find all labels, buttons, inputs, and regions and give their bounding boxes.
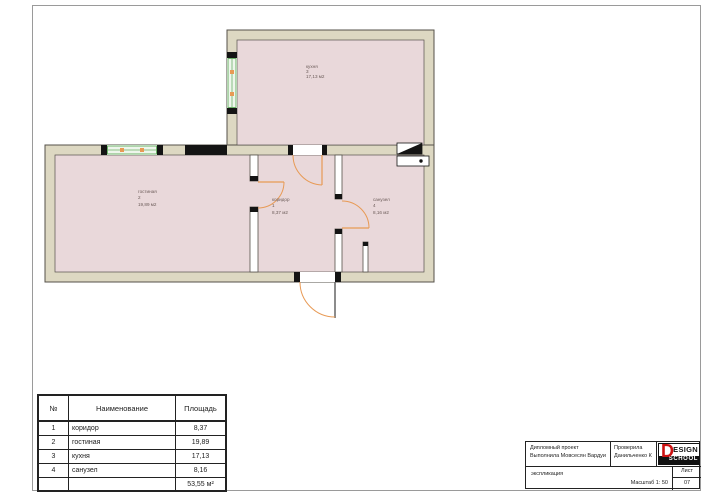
scale: Масштаб 1: 50: [631, 480, 668, 488]
doc-type-cell: экспликация Масштаб 1: 50: [526, 467, 673, 490]
table-row: 1 коридор 8,37: [38, 421, 226, 436]
sheet-number: 07: [673, 478, 701, 490]
doc-type: экспликация: [531, 471, 672, 479]
svg-text:4: 4: [373, 203, 376, 208]
table-row: 3 кухня 17,13: [38, 450, 226, 464]
table-row: 2 гостиная 19,89: [38, 436, 226, 450]
sheet-label: Лист: [673, 467, 701, 478]
entrance-door: [294, 272, 341, 318]
header-area: Площадь: [176, 395, 227, 421]
title-block: Дипломный проект Выполнила Мовсесян Вард…: [525, 441, 700, 489]
design-school-logo: D ESIGN SCHOOL: [658, 443, 700, 465]
table-header-row: № Наименование Площадь: [38, 395, 226, 421]
explication-table: № Наименование Площадь 1 коридор 8,37 2 …: [37, 394, 227, 492]
svg-text:1: 1: [272, 203, 275, 208]
svg-text:19,89 м2: 19,89 м2: [138, 202, 157, 207]
svg-text:17,13 м2: 17,13 м2: [306, 74, 325, 79]
total-area: 53,55 м²: [176, 478, 227, 492]
project-title: Дипломный проект: [530, 445, 610, 453]
author: Выполнила Мовсесян Вардуи: [530, 453, 610, 461]
window: [227, 52, 237, 114]
table-total-row: 53,55 м²: [38, 478, 226, 492]
partition-bathroom-stub: [363, 242, 368, 272]
svg-text:8,16 м2: 8,16 м2: [373, 210, 389, 215]
svg-text:гостиная: гостиная: [138, 189, 157, 194]
logo-cell: D ESIGN SCHOOL: [657, 442, 701, 467]
checker-info: Проверила Данильченко К: [611, 442, 657, 467]
svg-text:2: 2: [138, 195, 141, 200]
table-row: 4 санузел 8,16: [38, 464, 226, 478]
svg-text:санузел: санузел: [373, 197, 390, 202]
partition-living-corridor: [250, 155, 258, 272]
project-info: Дипломный проект Выполнила Мовсесян Вард…: [526, 442, 611, 467]
logo-letter-d: D: [661, 443, 674, 460]
header-name: Наименование: [69, 395, 176, 421]
room-lower-interior: [55, 155, 424, 272]
wall-segment-dark: [185, 145, 227, 155]
checked-label: Проверила: [614, 445, 656, 453]
room-kitchen: [237, 40, 424, 145]
header-num: №: [38, 395, 69, 421]
svg-text:коридор: коридор: [272, 197, 290, 202]
window: [101, 145, 163, 155]
svg-text:8,37 м2: 8,37 м2: [272, 210, 288, 215]
checker-name: Данильченко К: [614, 453, 656, 461]
